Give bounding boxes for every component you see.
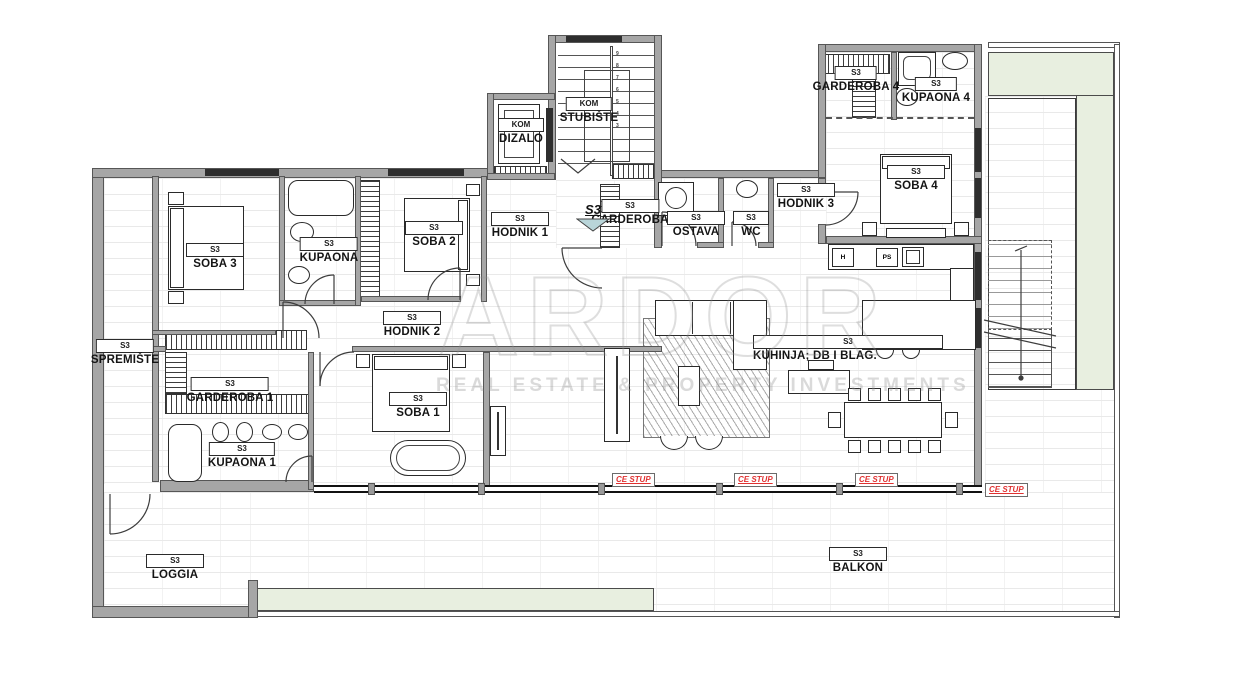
room-tag: KOM xyxy=(498,118,544,132)
step-number: 9 xyxy=(616,52,619,57)
toilet-icon xyxy=(212,422,229,442)
wardrobe-hatch xyxy=(360,180,380,298)
wall xyxy=(279,300,361,306)
entry-marker-label: S3 xyxy=(585,203,601,217)
nightstand-icon xyxy=(466,184,480,196)
step-number: 6 xyxy=(616,88,619,93)
bed-pillow xyxy=(170,208,184,288)
step-number: 7 xyxy=(616,76,619,81)
step-number: 4 xyxy=(616,112,619,117)
room-label-kupaona-4: S3 KUPAONA 4 xyxy=(902,77,970,105)
room-name: LOGGIA xyxy=(152,569,199,582)
room-label-hodnik-1: S3 HODNIK 1 xyxy=(491,212,549,240)
room-tag: S3 xyxy=(829,547,887,561)
planter-top-right xyxy=(988,52,1114,96)
room-tag: S3 xyxy=(887,165,945,179)
window xyxy=(975,252,981,300)
window xyxy=(975,128,981,172)
sink-icon xyxy=(288,266,310,284)
sink-icon xyxy=(288,424,308,440)
wall xyxy=(279,176,285,306)
room-tag: S3 xyxy=(835,66,877,80)
planter-right-column xyxy=(1076,95,1114,390)
room-label-ostava: S3 OSTAVA xyxy=(667,211,725,239)
chair-icon xyxy=(868,440,881,453)
glass-mullion xyxy=(598,483,605,495)
column-label: CE STUP xyxy=(612,473,655,487)
column-label: CE STUP xyxy=(734,473,777,487)
room-name: KUPAONA 1 xyxy=(208,457,276,470)
room-name: SOBA 4 xyxy=(894,180,938,193)
room-tag: KOM xyxy=(566,97,612,111)
room-label-soba-2: S3 SOBA 2 xyxy=(405,221,463,249)
wall xyxy=(92,606,258,618)
room-label-garderoba-4: S3 GARDEROBA 4 xyxy=(813,66,900,94)
glass-mullion xyxy=(478,483,485,495)
entry-arrow-icon xyxy=(576,217,610,233)
external-stairs-lower xyxy=(988,330,1052,388)
room-label-spremiste: S3 SPREMIŠTE xyxy=(91,339,159,367)
wardrobe-hatch xyxy=(612,164,654,179)
room-name: OSTAVA xyxy=(673,226,720,239)
wall xyxy=(308,352,314,490)
chair-icon xyxy=(928,440,941,453)
room-label-stubiste: KOM STUBIŠTE xyxy=(560,97,618,125)
nightstand-icon xyxy=(862,222,877,236)
room-name: HODNIK 3 xyxy=(778,198,835,211)
loggia-floor xyxy=(104,492,250,606)
chair-icon xyxy=(945,412,958,428)
entry-arrow-marker: S3 xyxy=(576,203,610,233)
room-tag: S3 xyxy=(300,237,358,251)
room-name: SOBA 2 xyxy=(412,236,456,249)
nightstand-icon xyxy=(356,354,370,368)
room-tag: S3 xyxy=(191,377,269,391)
room-name: KUPAONA 4 xyxy=(902,92,970,105)
tv-screen xyxy=(497,412,499,450)
room-name: KUPAONA xyxy=(300,252,359,265)
window xyxy=(566,36,622,42)
bathtub-icon xyxy=(168,424,202,482)
room-tag: S3 xyxy=(491,212,549,226)
room-name: GARDEROBA 1 xyxy=(187,392,274,405)
stairs-step-numbers: 9 8 7 6 5 4 3 xyxy=(616,52,619,129)
room-name: DIZALO xyxy=(499,133,543,146)
room-label-wc: S3 WC xyxy=(733,211,769,239)
watermark-subtitle: REAL ESTATE & PROPERTY INVESTMENTS xyxy=(436,375,970,397)
room-tag: S3 xyxy=(146,554,204,568)
room-tag: S3 xyxy=(186,243,244,257)
wardrobe-hatch xyxy=(165,352,187,394)
dining-table-icon xyxy=(844,402,942,438)
room-name: SOBA 3 xyxy=(193,258,237,271)
column-label: CE STUP xyxy=(985,483,1028,497)
wall xyxy=(654,170,826,178)
chair-icon xyxy=(888,440,901,453)
wall xyxy=(758,242,774,248)
glass-mullion xyxy=(368,483,375,495)
room-name: STUBIŠTE xyxy=(560,112,618,125)
room-name: BALKON xyxy=(833,562,883,575)
room-tag: S3 xyxy=(915,77,957,91)
room-name: SPREMIŠTE xyxy=(91,354,159,367)
window xyxy=(388,169,464,176)
chair-icon xyxy=(828,412,841,428)
toilet-icon xyxy=(736,180,758,198)
room-label-loggia: S3 LOGGIA xyxy=(146,554,204,582)
room-name: HODNIK 1 xyxy=(492,227,549,240)
wall xyxy=(818,44,982,52)
bed-bench xyxy=(886,228,946,238)
room-label-garderoba-1: S3 GARDEROBA 1 xyxy=(187,377,274,405)
step-number: 8 xyxy=(616,64,619,69)
wall xyxy=(818,224,826,244)
room-tag: S3 xyxy=(777,183,835,197)
bathtub-icon xyxy=(288,180,354,216)
floor-plan: 9 8 7 6 5 4 3 xyxy=(0,0,1235,687)
step-number: 5 xyxy=(616,100,619,105)
nightstand-icon xyxy=(168,192,184,205)
chair-icon xyxy=(908,440,921,453)
chair-icon xyxy=(848,440,861,453)
room-name: SOBA 1 xyxy=(396,407,440,420)
room-label-kupaona: S3 KUPAONA xyxy=(300,237,359,265)
room-tag: S3 xyxy=(383,311,441,325)
nightstand-icon xyxy=(168,291,184,304)
room-label-soba-4: S3 SOBA 4 xyxy=(887,165,945,193)
wall xyxy=(152,330,276,335)
glass-mullion xyxy=(716,483,723,495)
room-tag: S3 xyxy=(96,339,154,353)
bathtub-inner xyxy=(396,445,460,471)
room-label-hodnik-3: S3 HODNIK 3 xyxy=(777,183,835,211)
wall xyxy=(92,168,104,618)
kitchen-sink-basin xyxy=(906,250,920,264)
sink-icon xyxy=(942,52,968,70)
glass-mullion xyxy=(836,483,843,495)
planter-bottom xyxy=(252,588,654,611)
step-number: 3 xyxy=(616,124,619,129)
external-stairs-upper xyxy=(988,240,1052,330)
room-name: HODNIK 2 xyxy=(384,326,441,339)
watermark-title: ARDOR xyxy=(438,252,889,381)
column-label: CE STUP xyxy=(855,473,898,487)
window xyxy=(205,169,279,176)
room-tag: S3 xyxy=(209,442,275,456)
elevator-door xyxy=(546,108,553,162)
room-tag: S3 xyxy=(667,211,725,225)
wall xyxy=(487,93,494,180)
room-label-balkon: S3 BALKON xyxy=(829,547,887,575)
wall xyxy=(152,176,159,482)
window xyxy=(975,178,981,218)
glass-mullion xyxy=(956,483,963,495)
railing-right xyxy=(1114,44,1120,618)
room-tag: S3 xyxy=(733,211,769,225)
room-name: GARDEROBA 4 xyxy=(813,81,900,94)
room-label-hodnik-2: S3 HODNIK 2 xyxy=(383,311,441,339)
room-tag: S3 xyxy=(405,221,463,235)
railing-bottom xyxy=(252,611,1120,617)
wall xyxy=(487,173,555,180)
bed-pillow xyxy=(374,356,448,370)
nightstand-icon xyxy=(954,222,969,236)
room-name: WC xyxy=(741,226,761,239)
sink-icon xyxy=(262,424,282,440)
room-label-soba-3: S3 SOBA 3 xyxy=(186,243,244,271)
dashed-wall xyxy=(826,117,974,120)
wall xyxy=(487,93,555,100)
wall xyxy=(697,242,724,248)
wall xyxy=(248,580,258,618)
railing-top xyxy=(988,42,1120,48)
room-label-dizalo: KOM DIZALO xyxy=(498,118,544,146)
wall xyxy=(818,44,826,178)
bidet-icon xyxy=(236,422,253,442)
room-label-kupaona-1: S3 KUPAONA 1 xyxy=(208,442,276,470)
